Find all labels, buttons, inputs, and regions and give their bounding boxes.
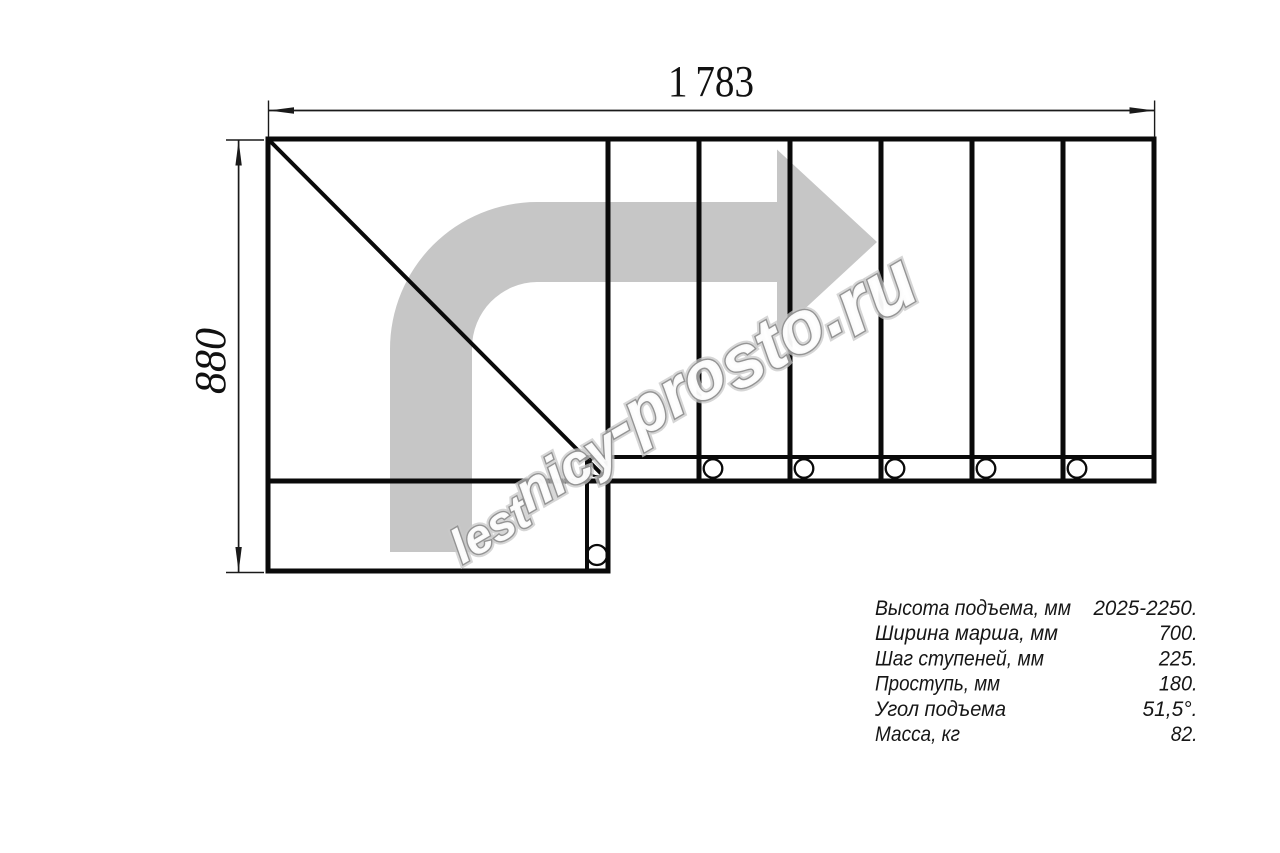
svg-text:880: 880 <box>186 328 235 394</box>
svg-text:225.: 225. <box>1158 647 1198 671</box>
svg-text:51,5°.: 51,5°. <box>1143 697 1198 721</box>
svg-text:2025-2250.: 2025-2250. <box>1093 596 1198 620</box>
svg-text:180.: 180. <box>1159 672 1198 696</box>
svg-text:700.: 700. <box>1159 621 1198 645</box>
svg-text:1 783: 1 783 <box>668 57 754 106</box>
svg-text:Высота подъема, мм: Высота подъема, мм <box>875 596 1071 620</box>
svg-text:Масса, кг: Масса, кг <box>875 722 960 746</box>
svg-text:Ширина марша, мм: Ширина марша, мм <box>875 621 1058 645</box>
svg-text:Шаг ступеней, мм: Шаг ступеней, мм <box>875 647 1044 671</box>
svg-text:82.: 82. <box>1171 722 1198 746</box>
svg-text:Угол подъема: Угол подъема <box>874 697 1006 721</box>
svg-text:Проступь, мм: Проступь, мм <box>875 672 1000 696</box>
